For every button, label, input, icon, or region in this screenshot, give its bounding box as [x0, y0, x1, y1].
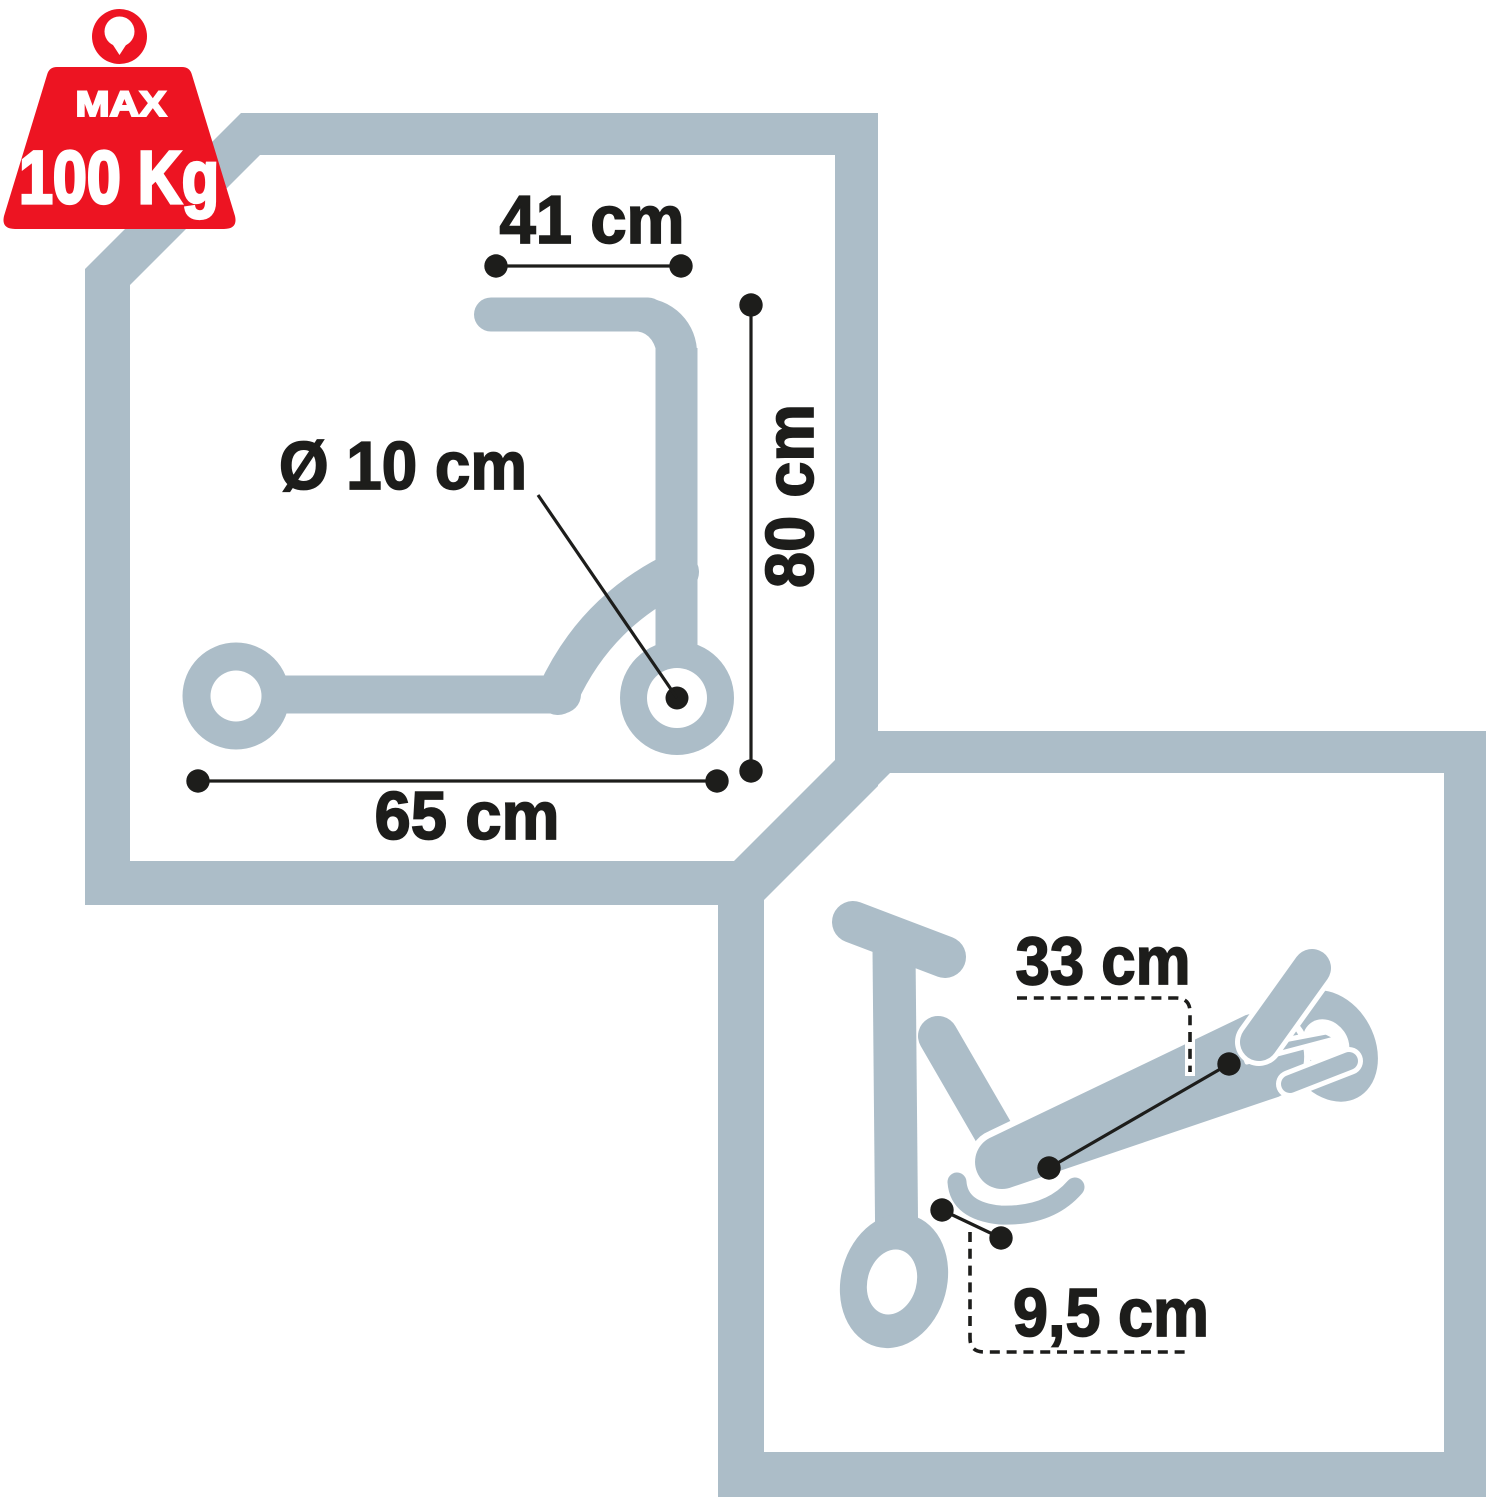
svg-text:80 cm: 80 cm: [752, 404, 828, 588]
svg-text:65 cm: 65 cm: [375, 778, 560, 854]
svg-text:Ø 10 cm: Ø 10 cm: [279, 428, 527, 504]
svg-text:33 cm: 33 cm: [1016, 923, 1191, 999]
svg-text:9,5 cm: 9,5 cm: [1013, 1275, 1209, 1351]
svg-text:100 Kg: 100 Kg: [19, 136, 219, 219]
svg-text:MAX: MAX: [76, 85, 168, 124]
svg-text:41 cm: 41 cm: [500, 182, 685, 258]
